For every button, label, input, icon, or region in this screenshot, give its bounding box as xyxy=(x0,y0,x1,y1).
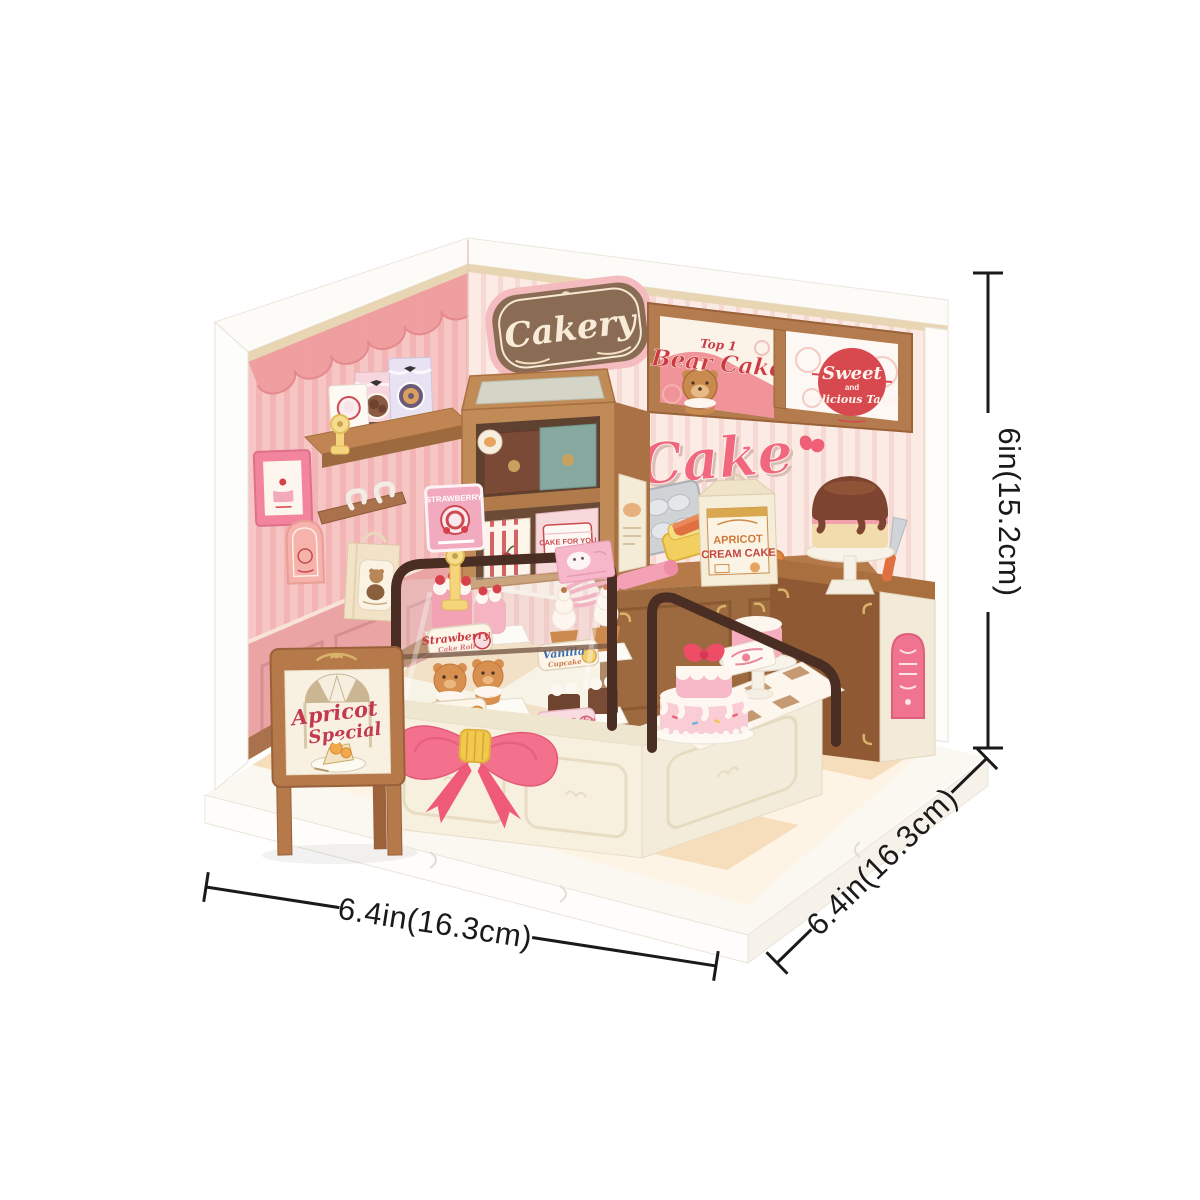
scene: Cakery Top 1 Bear Cake Sweet and Delici xyxy=(0,0,1200,1200)
dim-height-label: 6in(15.2cm) xyxy=(992,427,1027,596)
apricot-box-line1: APRICOT xyxy=(713,533,763,547)
stand-stem xyxy=(844,556,856,582)
cakery-sign: Cakery xyxy=(485,276,654,381)
left-wall-outer-column xyxy=(215,322,248,790)
stand-base xyxy=(826,580,874,594)
wall-decal-arched xyxy=(286,520,324,583)
product-photo-miniature-bakery: Cakery Top 1 Bear Cake Sweet and Delici xyxy=(0,0,1200,1200)
sweet-poster-line3: Delicious Taste xyxy=(804,393,899,406)
pink-arch-decal xyxy=(892,634,924,718)
dim-front-line-left xyxy=(206,887,339,908)
striped-tin xyxy=(484,518,530,578)
photo-frame xyxy=(254,450,313,526)
strawberry-sign-card: STRAWBERRY xyxy=(425,485,486,552)
chocolate-sheen xyxy=(824,481,876,495)
dimension-height: 6in(15.2cm) xyxy=(973,273,1027,748)
lightbox-divider xyxy=(774,329,786,409)
sweet-poster-line1: Sweet xyxy=(822,363,882,384)
sweet-poster-line2: and xyxy=(845,383,859,392)
cabinet-side-poster xyxy=(619,474,646,572)
bunny-card xyxy=(555,540,615,583)
apricot-cream-cake-box: APRICOT CREAM CAKE xyxy=(698,474,778,587)
